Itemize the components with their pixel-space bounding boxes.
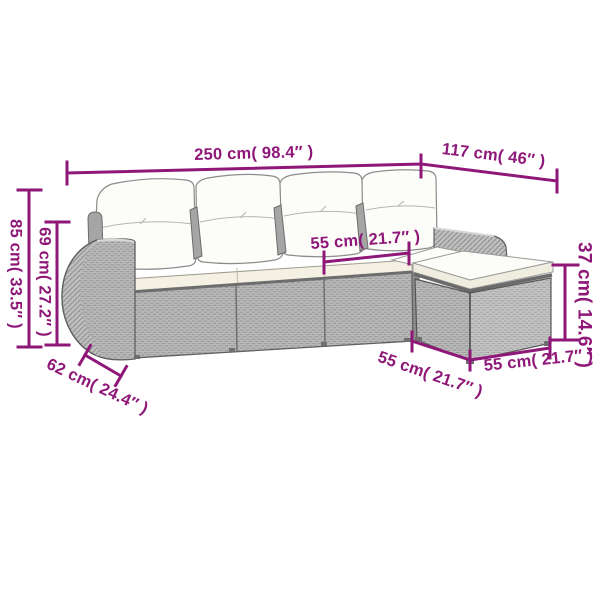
back-cushion-2 [196,174,283,263]
sofa-diagram-canvas [0,0,600,600]
dimension-diagram: 250 cm( 98.4″ ) 117 cm( 46″ ) 85 cm( 33.… [0,0,600,600]
dim-label-overall-height: 85 cm( 33.5″ ) [7,219,24,329]
dim-label-backrest-height: 69 cm( 27.2″ ) [36,227,53,337]
dim-label-total-length: 250 cm( 98.4″ ) [194,144,314,164]
sofa-illustration [62,170,553,364]
footstool-front-left-face [415,279,470,361]
